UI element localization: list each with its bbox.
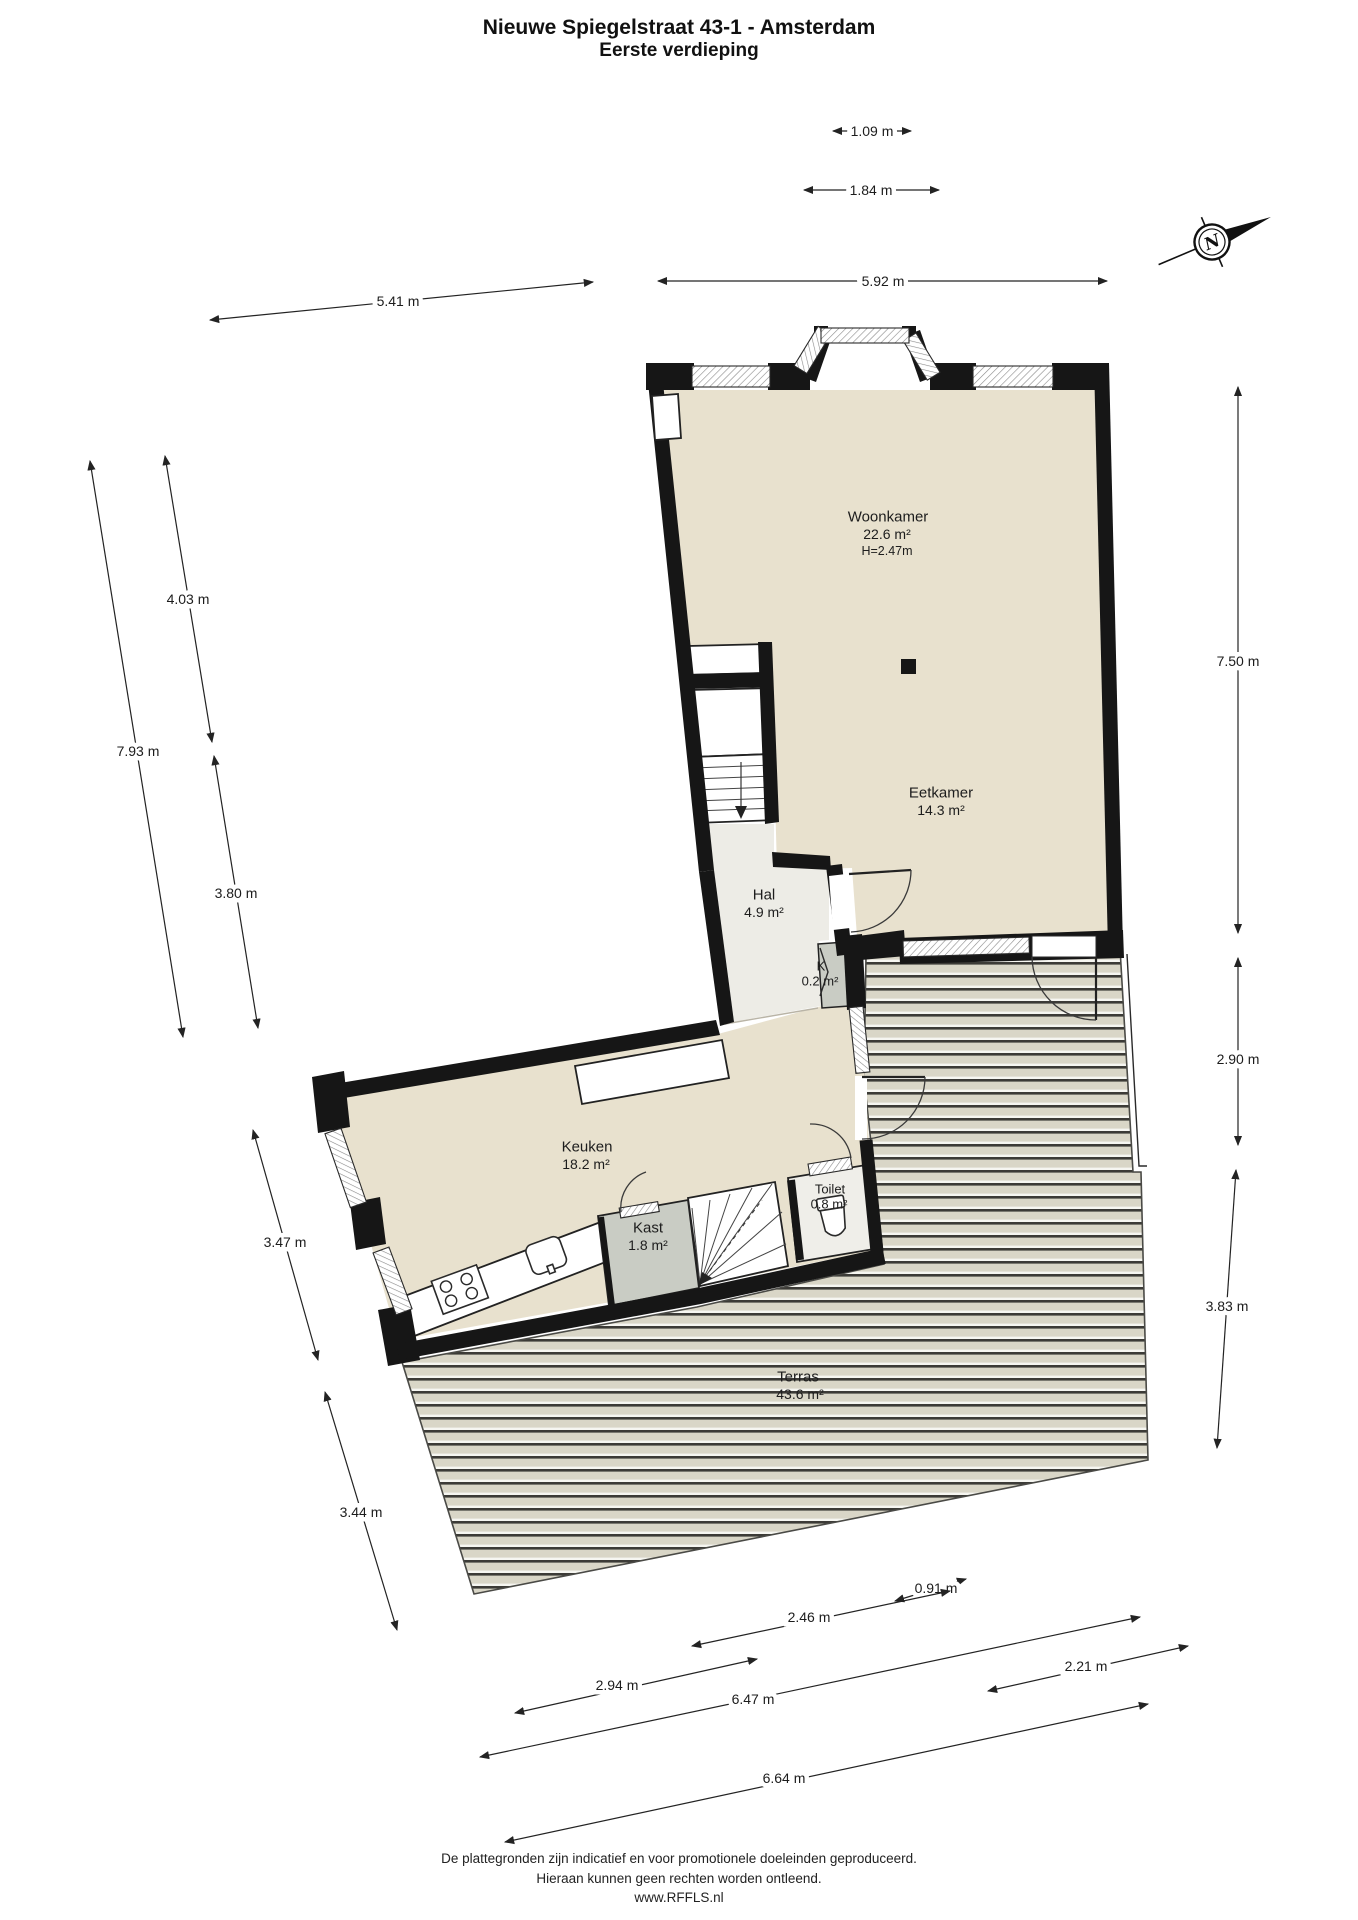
chimney-niche	[652, 394, 681, 440]
dimension-3-47: 3.47 m	[253, 1130, 318, 1360]
room-label-keuken: Keuken 18.2 m²	[562, 1139, 613, 1173]
room-label-terras: Terras 43.6 m²	[776, 1369, 824, 1403]
svg-text:2.46 m: 2.46 m	[788, 1609, 831, 1625]
svg-text:1.84 m: 1.84 m	[850, 182, 893, 198]
dimension-2-90: 2.90 m	[1217, 958, 1260, 1145]
dimension-0-91: 0.91 m	[895, 1579, 966, 1601]
window-bay-top	[821, 328, 909, 343]
woonkamer-height: H=2.47m	[861, 544, 912, 558]
toilet-name: Toilet	[815, 1182, 846, 1197]
kast-name: Kast	[633, 1220, 664, 1237]
dimension-7-50: 7.50 m	[1217, 387, 1260, 933]
eetkamer-area: 14.3 m²	[917, 802, 965, 818]
keuken-area: 18.2 m²	[562, 1156, 610, 1172]
dimension-3-83: 3.83 m	[1206, 1170, 1249, 1448]
svg-text:7.50 m: 7.50 m	[1217, 653, 1260, 669]
svg-text:7.93 m: 7.93 m	[117, 743, 160, 759]
stairwell-void	[690, 688, 772, 757]
window-living-top-left	[692, 366, 770, 387]
wall-stair-stub	[686, 672, 771, 689]
room-label-eetkamer: Eetkamer 14.3 m²	[909, 785, 973, 819]
dimension-7-93: 7.93 m	[90, 461, 183, 1037]
dimension-6-64: 6.64 m	[505, 1704, 1148, 1842]
svg-text:2.90 m: 2.90 m	[1217, 1051, 1260, 1067]
toilet-area: 0.8 m²	[811, 1197, 849, 1212]
eetkamer-name: Eetkamer	[909, 785, 973, 802]
svg-text:3.80 m: 3.80 m	[215, 885, 258, 901]
svg-text:1.09 m: 1.09 m	[851, 123, 894, 139]
svg-text:5.92 m: 5.92 m	[862, 273, 905, 289]
disclaimer-line1: De plattegronden zijn indicatief en voor…	[0, 1849, 1358, 1869]
disclaimer-line2: Hieraan kunnen geen rechten worden ontle…	[0, 1869, 1358, 1889]
terras-name: Terras	[777, 1369, 819, 1386]
door-gap-dining-terrace	[1032, 936, 1096, 957]
k-area: 0.2 m²	[802, 974, 840, 989]
hal-name: Hal	[753, 887, 776, 904]
door-gap-kitchen-terrace	[855, 1076, 867, 1140]
svg-text:3.44 m: 3.44 m	[340, 1504, 383, 1520]
kast-area: 1.8 m²	[628, 1237, 668, 1253]
stair-closet	[688, 644, 769, 675]
dimension-1-09: 1.09 m	[833, 123, 911, 139]
room-label-kast: Kast 1.8 m²	[628, 1220, 668, 1254]
dimension-2-46: 2.46 m	[692, 1591, 950, 1646]
door-gap-hall-dining	[829, 874, 850, 930]
column	[901, 659, 916, 674]
window-living-top-right	[973, 366, 1053, 387]
svg-text:2.94 m: 2.94 m	[596, 1677, 639, 1693]
hal-area: 4.9 m²	[744, 904, 784, 920]
svg-text:3.83 m: 3.83 m	[1206, 1298, 1249, 1314]
k-name: K	[817, 959, 826, 974]
svg-text:6.64 m: 6.64 m	[763, 1770, 806, 1786]
window-dining-bottom	[903, 937, 1029, 957]
dimension-5-92: 5.92 m	[658, 273, 1107, 289]
svg-text:6.47 m: 6.47 m	[732, 1691, 775, 1707]
footer-website: www.RFFLS.nl	[0, 1888, 1358, 1908]
dimension-3-44: 3.44 m	[325, 1392, 397, 1630]
dimension-2-94: 2.94 m	[515, 1659, 757, 1713]
footer-disclaimer: De plattegronden zijn indicatief en voor…	[0, 1849, 1358, 1908]
floorplan-canvas: Woonkamer 22.6 m² H=2.47m Eetkamer 14.3 …	[0, 0, 1358, 1920]
woonkamer-area: 22.6 m²	[863, 526, 911, 542]
svg-text:4.03 m: 4.03 m	[167, 591, 210, 607]
dimension-3-80: 3.80 m	[214, 756, 258, 1028]
floorplan-page: Nieuwe Spiegelstraat 43-1 - Amsterdam Ee…	[0, 0, 1358, 1920]
room-label-toilet: Toilet 0.8 m²	[811, 1182, 849, 1212]
dimension-6-47: 6.47 m	[480, 1617, 1140, 1757]
keuken-name: Keuken	[562, 1139, 613, 1156]
woonkamer-name: Woonkamer	[848, 509, 929, 526]
terras-area: 43.6 m²	[776, 1386, 824, 1402]
compass-north-icon: N	[1148, 192, 1281, 289]
svg-text:2.21 m: 2.21 m	[1065, 1658, 1108, 1674]
svg-text:3.47 m: 3.47 m	[264, 1234, 307, 1250]
wall-kitchen-topleft-corner	[312, 1071, 350, 1133]
dimension-1-84: 1.84 m	[804, 182, 939, 198]
dimension-2-21: 2.21 m	[988, 1646, 1188, 1691]
dimension-5-41: 5.41 m	[210, 282, 593, 320]
dimension-4-03: 4.03 m	[165, 456, 212, 742]
closet-kast	[598, 1200, 699, 1306]
svg-text:5.41 m: 5.41 m	[377, 293, 420, 309]
